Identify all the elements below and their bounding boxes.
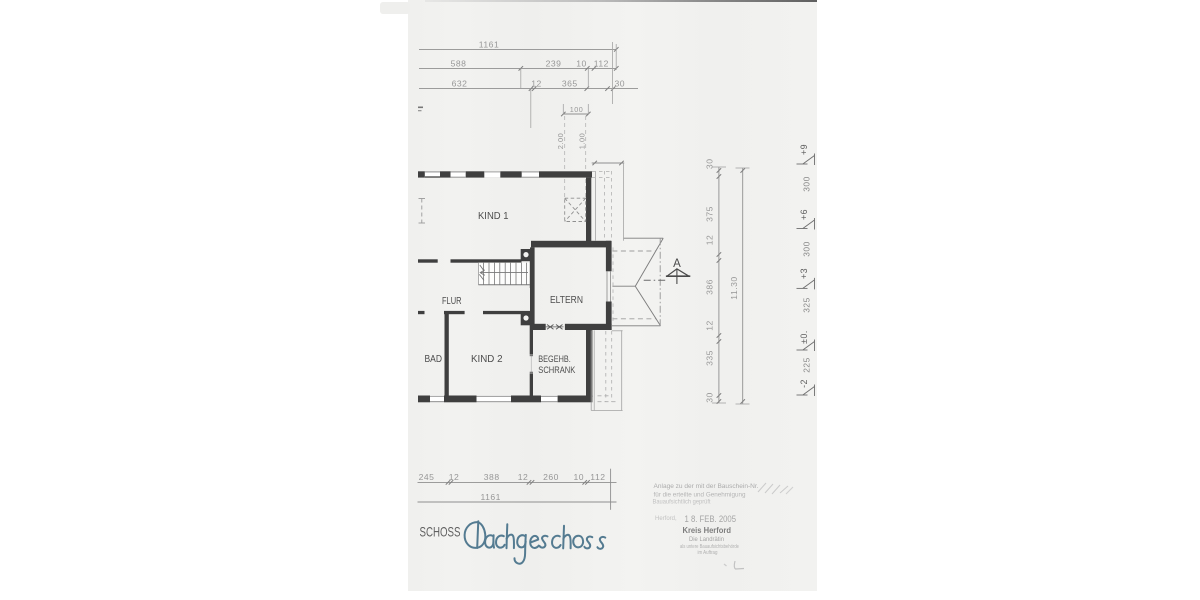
svg-text:KIND 1: KIND 1 <box>478 211 509 222</box>
svg-text:für die erteilte und Genehmigu: für die erteilte und Genehmigung <box>654 493 746 499</box>
svg-text:11.30: 11.30 <box>729 276 739 299</box>
svg-text:BEGEHB.: BEGEHB. <box>538 354 571 364</box>
svg-text:335: 335 <box>705 350 715 366</box>
svg-text:12: 12 <box>518 472 529 482</box>
svg-text:SCHOSS: SCHOSS <box>420 524 461 540</box>
svg-text:+3: +3 <box>799 268 809 279</box>
svg-text:225: 225 <box>802 357 812 372</box>
svg-text:10: 10 <box>574 472 585 482</box>
svg-text:300: 300 <box>802 241 812 256</box>
svg-text:SCHRANK: SCHRANK <box>538 365 576 375</box>
svg-text:BAD: BAD <box>425 354 443 365</box>
svg-text:386: 386 <box>705 279 715 295</box>
svg-text:1161: 1161 <box>480 492 500 502</box>
svg-text:1 8. FEB. 2005: 1 8. FEB. 2005 <box>685 514 737 524</box>
svg-text:30: 30 <box>705 159 715 170</box>
svg-text:1.00: 1.00 <box>578 133 587 149</box>
svg-text:300: 300 <box>802 176 812 191</box>
svg-text:im Auftrag: im Auftrag <box>698 550 718 556</box>
svg-text:632: 632 <box>452 78 468 88</box>
svg-text:245: 245 <box>419 472 435 482</box>
svg-text:Herford,: Herford, <box>655 516 677 522</box>
svg-text:Kreis Herford: Kreis Herford <box>683 525 732 535</box>
svg-text:A: A <box>673 258 681 270</box>
svg-text:12: 12 <box>705 235 715 246</box>
svg-text:FLUR: FLUR <box>442 296 462 307</box>
svg-text:100: 100 <box>570 105 584 114</box>
svg-text:Anlage zu der mit der Bauschei: Anlage zu der mit der Bauschein-Nr. <box>654 484 759 490</box>
svg-text:30: 30 <box>705 392 715 403</box>
svg-text:388: 388 <box>484 472 500 482</box>
svg-text:-2: -2 <box>799 379 809 388</box>
svg-text:375: 375 <box>705 206 715 222</box>
svg-text:112: 112 <box>590 472 605 482</box>
svg-text:12: 12 <box>531 78 542 88</box>
svg-text:+9: +9 <box>799 144 809 155</box>
svg-text:588: 588 <box>451 59 467 69</box>
svg-text:±0.: ±0. <box>799 330 809 344</box>
svg-text:260: 260 <box>543 472 559 482</box>
svg-text:12: 12 <box>449 472 460 482</box>
svg-text:325: 325 <box>802 297 812 312</box>
svg-text:239: 239 <box>546 59 562 69</box>
svg-text:1161: 1161 <box>479 40 499 50</box>
svg-text:+6: +6 <box>799 209 809 220</box>
svg-text:12: 12 <box>705 320 715 331</box>
svg-text:Bauaufsichtlich geprüft: Bauaufsichtlich geprüft <box>653 500 711 506</box>
svg-text:30: 30 <box>615 78 626 88</box>
svg-text:ELTERN: ELTERN <box>550 295 583 306</box>
svg-text:KIND 2: KIND 2 <box>471 354 503 365</box>
svg-text:10: 10 <box>576 59 587 69</box>
svg-text:Die Landrätin: Die Landrätin <box>689 536 724 543</box>
svg-text:2.00: 2.00 <box>556 133 565 149</box>
svg-text:365: 365 <box>562 78 578 88</box>
svg-text:112: 112 <box>594 59 609 69</box>
